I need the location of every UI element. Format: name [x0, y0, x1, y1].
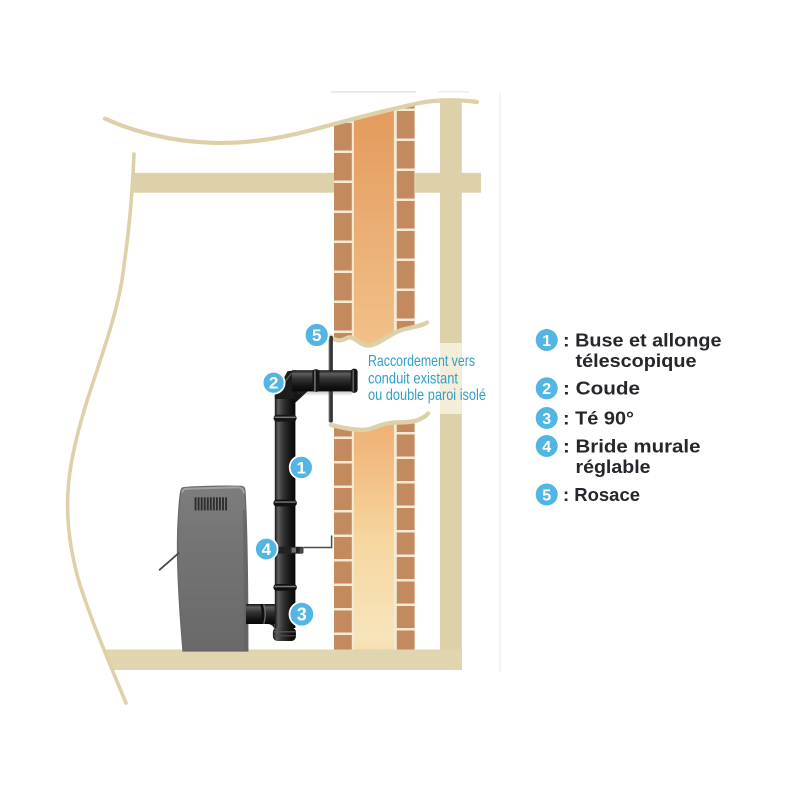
svg-text:télescopique: télescopique: [576, 351, 697, 371]
svg-text:: Coude: : Coude: [563, 379, 640, 399]
svg-text:1: 1: [297, 458, 306, 477]
svg-text:: Rosace: : Rosace: [563, 485, 640, 505]
svg-text:: Buse et allonge: : Buse et allonge: [563, 330, 722, 350]
svg-text:4: 4: [542, 439, 551, 456]
svg-text:conduit existant: conduit existant: [368, 371, 458, 388]
svg-text:2: 2: [269, 374, 278, 393]
svg-text:3: 3: [297, 604, 307, 624]
svg-text:réglable: réglable: [576, 457, 651, 477]
svg-text:2: 2: [542, 381, 551, 398]
svg-text:3: 3: [542, 411, 551, 428]
svg-text:Raccordement vers: Raccordement vers: [368, 353, 475, 370]
svg-text:: Té 90°: : Té 90°: [563, 408, 634, 428]
svg-text:5: 5: [312, 326, 321, 345]
svg-text:: Bride murale: : Bride murale: [563, 436, 701, 456]
svg-text:ou double paroi isolé: ou double paroi isolé: [368, 387, 486, 404]
svg-text:1: 1: [542, 333, 551, 350]
svg-text:5: 5: [542, 487, 551, 504]
svg-text:4: 4: [262, 540, 272, 559]
